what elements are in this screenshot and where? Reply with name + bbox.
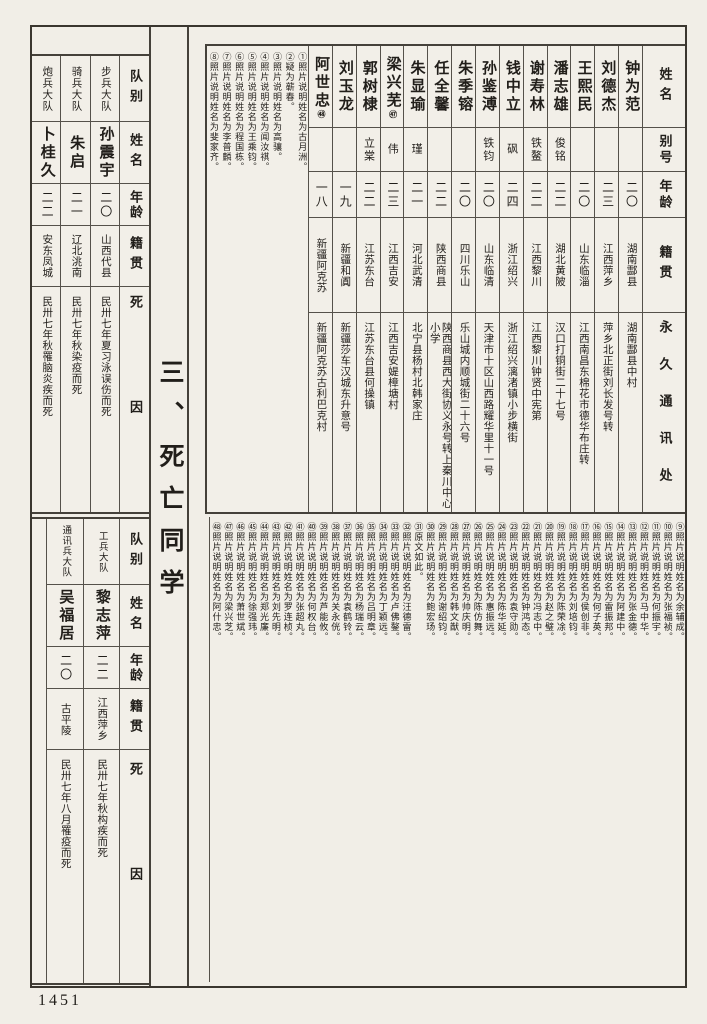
person-name: 任全馨	[432, 60, 448, 114]
name-cell: 钱中立	[500, 46, 523, 128]
photo-caption-note: ㉗照片说明姓名为帅庆明。	[461, 522, 470, 982]
note-column: ㊼照片说明姓名为梁兴芝。	[222, 522, 234, 982]
alias-value: 铁鳌	[529, 137, 542, 163]
age-cell: 二二	[428, 172, 451, 218]
permanent-address: 湖南酃县中村	[625, 322, 637, 388]
native-place: 江苏东台	[362, 243, 374, 287]
note-column: ㉓照片说明姓名为袁守勋。	[507, 522, 519, 982]
note-column: ⑱照片说明姓名为刘培钧。	[566, 522, 578, 982]
cause-cell: 民卅七年秋构疾而死	[84, 750, 120, 983]
address-cell: 江苏东台县何操镇	[357, 313, 380, 512]
age-value: 二一	[409, 181, 423, 209]
photo-caption-note: ㉘照片说明姓名为韩文猷。	[449, 522, 458, 982]
address-cell: 新疆莎车汉城东升意号	[333, 313, 356, 512]
note-column: ⑭照片说明姓名为阿建中。	[614, 522, 626, 982]
photo-caption-note: ㉜照片说明姓名为汪德雷。	[401, 522, 410, 982]
alias-cell	[333, 128, 356, 172]
cause-cell: 民卅七年秋罹脑炎疾而死	[32, 287, 60, 512]
note-column: ㉜照片说明姓名为汪德雷。	[400, 522, 412, 982]
address-label: 永久通讯处	[657, 320, 672, 505]
name-label: 姓名	[127, 596, 142, 636]
native-place: 山东临淄	[577, 243, 589, 287]
note-column: ㊶照片说明姓名为张超丸。	[293, 522, 305, 982]
photo-caption-note: ⑱照片说明姓名为刘培钧。	[568, 522, 577, 982]
photo-caption-note: ①照片说明姓名为古月洲。	[297, 52, 306, 512]
address-cell: 萍乡北正街刘长发号转	[595, 313, 618, 512]
native-place: 江西萍乡	[95, 697, 107, 741]
person-name: 刘德杰	[599, 60, 615, 114]
photo-caption-note: ⑪照片说明姓名为何振宇。	[651, 522, 660, 982]
native-place: 辽北洮南	[69, 234, 81, 278]
bottom-left-unit-table: 队别 姓名 年龄 籍贯 死因 工兵大队 黎志萍 二二 江西萍乡 民卅七年秋构疾而…	[32, 517, 149, 985]
header-name: 姓名	[120, 122, 149, 184]
alias-value: 瑾	[410, 143, 423, 156]
note-column: ㊺照片说明姓名为徐强玮。	[246, 522, 258, 982]
alias-value: 立棠	[362, 137, 375, 163]
note-column: ⑮照片说明姓名为雷振邦。	[602, 522, 614, 982]
age-cell: 二三	[595, 172, 618, 218]
cause-cell: 民卅七年八月罹疫而死	[47, 750, 83, 983]
alias-value: 砜	[505, 143, 518, 156]
bottom-left-rows: 工兵大队 黎志萍 二二 江西萍乡 民卅七年秋构疾而死 通讯兵大队 吴福居 二〇 …	[47, 519, 119, 983]
note-column: ㉟照片说明姓名为吕明章。	[364, 522, 376, 982]
person-name: 孙鉴溥	[480, 60, 496, 114]
native-cell: 湖北黄陂	[548, 218, 571, 313]
person-name: 刘玉龙	[337, 60, 353, 114]
header-native: 籍贯	[120, 226, 149, 287]
person-column: 钟为范 二〇 湖南酃县 湖南酃县中村	[618, 46, 642, 512]
age-value: 二二	[528, 181, 542, 209]
person-column: 郭树棣 立棠 二二 江苏东台 江苏东台县何操镇	[356, 46, 380, 512]
age-value: 二〇	[481, 181, 495, 209]
person-column: 梁兴芜㊼ 伟 二三 江西吉安 江西吉安媞樟塘村	[380, 46, 404, 512]
alias-cell	[428, 128, 451, 172]
address-cell: 江西黎川钟贤中宪第	[524, 313, 547, 512]
photo-caption-note: ㊺照片说明姓名为徐强玮。	[247, 522, 256, 982]
native-cell: 江西萍乡	[84, 689, 120, 750]
bottom-left-header-column: 队别 姓名 年龄 籍贯 死因	[119, 519, 149, 983]
note-column: ㊻照片说明姓名为萧世斌。	[234, 522, 246, 982]
cause-cell: 民卅七年夏习泳误伤而死	[91, 287, 119, 512]
name-cell: 朱启	[61, 122, 89, 184]
age-cell: 一八	[309, 172, 332, 218]
photo-caption-note: ㊻照片说明姓名为萧世斌。	[235, 522, 244, 982]
age-value: 二二	[552, 181, 566, 209]
person-column: 钱中立 砜 二四 浙江绍兴 浙江绍兴漓渚镇小步横街	[499, 46, 523, 512]
unit-cell: 炮兵大队	[32, 56, 60, 122]
native-place: 山东临清	[481, 243, 493, 287]
native-cell: 古平陵	[47, 689, 83, 750]
death-cause: 民卅七年秋染疫而死	[69, 296, 81, 395]
name-cell: 任全馨	[428, 46, 451, 128]
address-cell: 新疆阿克苏古利巴克村	[309, 313, 332, 512]
note-column: ㉒照片说明姓名为钟鸿态。	[519, 522, 531, 982]
death-cause: 民卅七年秋构疾而死	[95, 759, 107, 858]
unit-cell: 骑兵大队	[61, 56, 89, 122]
photo-caption-note: ㊲照片说明姓名为袁鹤铃。	[342, 522, 351, 982]
native-place: 江西萍乡	[601, 243, 613, 287]
note-column: ⑩照片说明姓名为张福祯。	[661, 522, 673, 982]
name-cell: 钟为范	[619, 46, 642, 128]
note-column: ⑲照片说明姓名为陈荣凃。	[554, 522, 566, 982]
name-cell: 郭树棣	[357, 46, 380, 128]
age-value: 二〇	[98, 191, 112, 219]
age-cell: 二〇	[452, 172, 475, 218]
permanent-address: 陕西商县西大街协义永号转上秦川中心小学	[428, 322, 451, 512]
native-cell: 山东临清	[476, 218, 499, 313]
top-left-header-column: 队别 姓名 年龄 籍贯 死因	[119, 56, 149, 512]
photo-caption-note: ⑬照片说明姓名为张金德。	[627, 522, 636, 982]
header-name: 姓名	[120, 585, 149, 647]
native-cell: 四川乐山	[452, 218, 475, 313]
person-column: 潘志雄 俊铭 二二 湖北黄陂 汉口打铜街二十七号	[547, 46, 571, 512]
photo-caption-note: ㉒照片说明姓名为钟鸿态。	[520, 522, 529, 982]
photo-caption-note: ⑦照片说明姓名为李普麟。	[221, 52, 230, 512]
title-strip: 三、死亡同学	[149, 27, 189, 986]
photo-caption-note: ㉓照片说明姓名为袁守勋。	[508, 522, 517, 982]
photo-caption-note: ⑰照片说明姓名为侯创非。	[580, 522, 589, 982]
unit-name: 通讯兵大队	[59, 525, 70, 578]
native-place: 湖北黄陂	[553, 243, 565, 287]
unit-column: 工兵大队 黎志萍 二二 江西萍乡 民卅七年秋构疾而死	[83, 519, 120, 983]
name-cell: 王熙民	[571, 46, 594, 128]
death-cause: 民卅七年夏习泳误伤而死	[99, 296, 111, 417]
note-column: ①照片说明姓名为古月洲。	[295, 52, 308, 512]
unit-label: 队别	[127, 69, 142, 109]
photo-caption-note: ㊱照片说明姓名为杨瑞云。	[354, 522, 363, 982]
age-value: 一九	[337, 181, 351, 209]
native-label: 籍贯	[657, 245, 672, 285]
age-value: 二二	[361, 181, 375, 209]
photo-caption-note: ⑥照片说明姓名为程国栋。	[234, 52, 243, 512]
person-name: 潘志雄	[552, 60, 568, 114]
header-age: 年龄	[643, 172, 685, 218]
native-cell: 新疆阿克苏	[309, 218, 332, 313]
alias-cell	[619, 128, 642, 172]
name-cell: 孙震宇	[91, 122, 119, 184]
unit-column: 炮兵大队 卜桂久 二二 安东凤城 民卅七年秋罹脑炎疾而死	[32, 56, 60, 512]
alias-cell	[571, 128, 594, 172]
page-frame: 队别 姓名 年龄 籍贯 死因 步兵大队 孙震宇 二〇 山西代县 民卅七年夏习泳误…	[30, 25, 687, 988]
permanent-address: 萍乡北正街刘长发号转	[601, 322, 613, 432]
address-cell: 汉口打铜街二十七号	[548, 313, 571, 512]
unit-name: 炮兵大队	[40, 66, 52, 112]
note-column: ㉑照片说明姓名为冯志中。	[531, 522, 543, 982]
footnote-mark: ㊽	[317, 110, 326, 118]
cause-label: 死因	[127, 295, 142, 505]
header-unit: 队别	[120, 519, 149, 585]
note-column: ⑥照片说明姓名为程国栋。	[232, 52, 245, 512]
native-place: 湖南酃县	[625, 243, 637, 287]
name-cell: 孙鉴溥	[476, 46, 499, 128]
photo-caption-note: ⑧照片说明姓名为斐家齐。	[209, 52, 218, 512]
photo-caption-note: ㊽照片说明姓名为阿什忠。	[211, 522, 220, 982]
alias-value: 铁钧	[481, 137, 494, 163]
person-column: 朱显瑜 瑾 二一 河北武清 北宁县杨村北韩家庄	[403, 46, 427, 512]
name-cell: 朱显瑜	[404, 46, 427, 128]
cause-cell: 民卅七年秋染疫而死	[61, 287, 89, 512]
age-cell: 二〇	[619, 172, 642, 218]
name-cell: 刘玉龙	[333, 46, 356, 128]
note-column: ㉖照片说明姓名为陈仿舞。	[471, 522, 483, 982]
photo-caption-note: ㊷照片说明姓名为罗连桢。	[283, 522, 292, 982]
note-column: ⑤照片说明姓名为王乘钧。	[245, 52, 258, 512]
unit-cell: 通讯兵大队	[47, 519, 83, 585]
death-cause: 民卅七年八月罹疫而死	[59, 759, 71, 869]
age-value: 二四	[504, 181, 518, 209]
permanent-address: 江西黎川钟贤中宪第	[529, 322, 541, 421]
unit-label: 队别	[127, 532, 142, 572]
unit-column: 步兵大队 孙震宇 二〇 山西代县 民卅七年夏习泳误伤而死	[90, 56, 119, 512]
age-cell: 二〇	[476, 172, 499, 218]
note-column: ㊽照片说明姓名为阿什忠。	[210, 522, 222, 982]
note-column: ㊲照片说明姓名为袁鹤铃。	[341, 522, 353, 982]
note-column: ㊵照片说明姓名为何权台。	[305, 522, 317, 982]
person-name: 黎志萍	[93, 589, 110, 643]
photo-caption-note: ㉞照片说明姓名为丁颖远。	[378, 522, 387, 982]
note-column: ④照片说明姓名为闻汝祺。	[258, 52, 271, 512]
age-cell: 二二	[32, 184, 60, 226]
note-column: ㊱照片说明姓名为杨瑞云。	[353, 522, 365, 982]
person-name: 钟为范	[623, 60, 639, 114]
native-place: 四川乐山	[458, 243, 470, 287]
native-place: 浙江绍兴	[505, 243, 517, 287]
age-cell: 一九	[333, 172, 356, 218]
permanent-address: 江西南昌东棉花市德华布庄转	[577, 322, 589, 465]
alias-cell: 俊铭	[548, 128, 571, 172]
note-column: ㉔照片说明姓名为陈华延。	[495, 522, 507, 982]
permanent-address: 天津市十区山西路耀华里十一号	[481, 322, 493, 476]
age-cell: 二二	[84, 647, 120, 689]
photo-caption-note: ㊴照片说明姓名为芦能攸。	[318, 522, 327, 982]
header-native: 籍贯	[643, 218, 685, 313]
photo-caption-note: ㉑照片说明姓名为冯志中。	[532, 522, 541, 982]
roster-person-columns: 钟为范 二〇 湖南酃县 湖南酃县中村 刘德杰 二三 江西萍乡 萍乡北正街刘长发号…	[308, 46, 642, 512]
photo-caption-note: ㉔照片说明姓名为陈华延。	[496, 522, 505, 982]
death-cause: 民卅七年秋罹脑炎疾而死	[40, 296, 52, 417]
photo-caption-note: ㊵照片说明姓名为何权台。	[306, 522, 315, 982]
photo-caption-note: ⑩照片说明姓名为张福祯。	[663, 522, 672, 982]
note-column: ㊳照片说明姓名为关永侊。	[329, 522, 341, 982]
photo-caption-note: ㉖照片说明姓名为陈仿舞。	[473, 522, 482, 982]
native-place: 江西黎川	[529, 243, 541, 287]
age-cell: 二四	[500, 172, 523, 218]
unit-name: 步兵大队	[99, 66, 111, 112]
unit-cell: 步兵大队	[91, 56, 119, 122]
top-notes-block: ①照片说明姓名为古月洲。 ②疑为蕲春。 ③照片说明姓名为高骧。 ④照片说明姓名为…	[207, 46, 308, 512]
person-name: 吴福居	[56, 589, 73, 643]
native-place: 江西吉安	[386, 243, 398, 287]
person-column: 王熙民 二〇 山东临淄 江西南昌东棉花市德华布庄转	[570, 46, 594, 512]
age-value: 二一	[69, 191, 83, 219]
alias-label: 别号	[657, 134, 672, 166]
address-cell: 湖南酃县中村	[619, 313, 642, 512]
age-label: 年龄	[657, 179, 672, 211]
page-number: 1451	[38, 992, 82, 1010]
photo-caption-note: ㉚照片说明姓名为鲍宏玚。	[425, 522, 434, 982]
address-cell: 乐山城内顺城街二十六号	[452, 313, 475, 512]
note-column: ⑳照片说明姓名为赵之璧。	[543, 522, 555, 982]
name-cell: 梁兴芜㊼	[381, 46, 404, 128]
photo-caption-note: ㊹照片说明姓名为郑光廉。	[259, 522, 268, 982]
note-column: ③照片说明姓名为高骧。	[270, 52, 283, 512]
age-cell: 二二	[524, 172, 547, 218]
blank-column	[32, 519, 47, 983]
permanent-address: 乐山城内顺城街二十六号	[458, 322, 470, 443]
photo-caption-note: ⑤照片说明姓名为王乘钧。	[247, 52, 256, 512]
native-place: 陕西商县	[434, 243, 446, 287]
name-cell: 卜桂久	[32, 122, 60, 184]
native-cell: 湖南酃县	[619, 218, 642, 313]
note-column: ㉘照片说明姓名为韩文猷。	[448, 522, 460, 982]
note-column: ㉗照片说明姓名为帅庆明。	[459, 522, 471, 982]
age-value: 一八	[314, 181, 328, 209]
note-column: ⑨照片说明姓名为余辅成。	[673, 522, 685, 982]
permanent-address: 江苏东台县何操镇	[362, 322, 374, 410]
note-column: ⑰照片说明姓名为侯创非。	[578, 522, 590, 982]
native-label: 籍贯	[127, 236, 142, 276]
photo-caption-note: ⑯照片说明姓名为何子英。	[591, 522, 600, 982]
person-column: 刘德杰 二三 江西萍乡 萍乡北正街刘长发号转	[594, 46, 618, 512]
note-column: ㉛原文如此。	[412, 522, 424, 982]
permanent-address: 浙江绍兴漓渚镇小步横街	[505, 322, 517, 443]
section-title: 三、死亡同学	[151, 359, 187, 986]
native-place: 河北武清	[410, 243, 422, 287]
age-cell: 二〇	[47, 647, 83, 689]
person-name: 朱季镕	[456, 60, 472, 114]
age-value: 二〇	[457, 181, 471, 209]
age-cell: 二一	[61, 184, 89, 226]
age-cell: 二〇	[91, 184, 119, 226]
name-cell: 吴福居	[47, 585, 83, 647]
photo-caption-note: ㊸照片说明姓名为刘先明。	[271, 522, 280, 982]
age-value: 二〇	[576, 181, 590, 209]
age-cell: 二〇	[571, 172, 594, 218]
person-column: 任全馨 二二 陕西商县 陕西商县西大街协义永号转上秦川中心小学	[427, 46, 451, 512]
unit-column: 骑兵大队 朱启 二一 辽北洮南 民卅七年秋染疫而死	[60, 56, 89, 512]
header-cause: 死因	[120, 750, 149, 983]
note-column: ㊹照片说明姓名为郑光廉。	[258, 522, 270, 982]
person-column: 刘玉龙 一九 新疆和阗 新疆莎车汉城东升意号	[332, 46, 356, 512]
permanent-address: 江西吉安媞樟塘村	[386, 322, 398, 410]
scanned-register-page: { "page": { "section_title": "三、死亡同学", "…	[0, 0, 707, 1024]
age-value: 二〇	[624, 181, 638, 209]
person-name: 王熙民	[575, 60, 591, 114]
photo-caption-note: ③照片说明姓名为高骧。	[272, 52, 281, 512]
alias-value: 俊铭	[553, 137, 566, 163]
photo-caption-note: ②疑为蕲春。	[285, 52, 294, 512]
address-cell: 陕西商县西大街协义永号转上秦川中心小学	[428, 313, 451, 512]
note-column: ㉕照片说明姓名为惠振远。	[483, 522, 495, 982]
native-cell: 山西代县	[91, 226, 119, 287]
native-cell: 辽北洮南	[61, 226, 89, 287]
name-label: 姓名	[127, 133, 142, 173]
age-label: 年龄	[127, 653, 142, 683]
permanent-address: 新疆阿克苏古利巴克村	[314, 322, 326, 432]
note-column: ⑧照片说明姓名为斐家齐。	[207, 52, 220, 512]
alias-cell	[309, 128, 332, 172]
note-column: ㊷照片说明姓名为罗连桢。	[281, 522, 293, 982]
photo-caption-note: ⑳照片说明姓名为赵之璧。	[544, 522, 553, 982]
person-name: 朱显瑜	[408, 60, 424, 114]
person-name: 阿世忠	[313, 56, 329, 110]
age-cell: 二二	[548, 172, 571, 218]
alias-cell: 铁钧	[476, 128, 499, 172]
photo-caption-note: ㉟照片说明姓名为吕明章。	[366, 522, 375, 982]
native-cell: 江西萍乡	[595, 218, 618, 313]
note-column: ㊴照片说明姓名为芦能攸。	[317, 522, 329, 982]
age-label: 年龄	[127, 190, 142, 220]
person-name: 谢寿林	[528, 60, 544, 114]
native-place: 山西代县	[99, 234, 111, 278]
native-cell: 陕西商县	[428, 218, 451, 313]
native-cell: 安东凤城	[32, 226, 60, 287]
photo-caption-note: ⑭照片说明姓名为阿建中。	[615, 522, 624, 982]
header-age: 年龄	[120, 184, 149, 226]
age-value: 二二	[433, 181, 447, 209]
name-cell: 阿世忠㊽	[309, 46, 332, 128]
age-cell: 二一	[404, 172, 427, 218]
native-place: 新疆阿克苏	[314, 238, 326, 293]
photo-caption-note: ⑫照片说明姓名为马中华。	[639, 522, 648, 982]
permanent-address: 北宁县杨村北韩家庄	[410, 322, 422, 421]
top-left-unit-table: 队别 姓名 年龄 籍贯 死因 步兵大队 孙震宇 二〇 山西代县 民卅七年夏习泳误…	[32, 54, 149, 514]
header-name: 姓名	[643, 46, 685, 128]
person-column: 谢寿林 铁鳌 二二 江西黎川 江西黎川钟贤中宪第	[523, 46, 547, 512]
address-cell: 江西南昌东棉花市德华布庄转	[571, 313, 594, 512]
header-age: 年龄	[120, 647, 149, 689]
note-column: ㉞照片说明姓名为丁颖远。	[376, 522, 388, 982]
native-cell: 江苏东台	[357, 218, 380, 313]
bottom-notes-block: ⑨照片说明姓名为余辅成。 ⑩照片说明姓名为张福祯。 ⑪照片说明姓名为何振宇。 ⑫…	[209, 517, 685, 982]
photo-caption-note: ⑲照片说明姓名为陈荣凃。	[556, 522, 565, 982]
roster-table: 姓名 别号 年龄 籍贯 永久通讯处 钟为范 二〇 湖南酃县 湖南酃县中村 刘德杰…	[205, 44, 685, 514]
person-column: 阿世忠㊽ 一八 新疆阿克苏 新疆阿克苏古利巴克村	[309, 46, 332, 512]
person-name: 孙震宇	[96, 126, 113, 180]
photo-caption-note: ⑮照片说明姓名为雷振邦。	[603, 522, 612, 982]
person-name: 梁兴芜	[385, 56, 401, 110]
cause-label: 死因	[127, 762, 142, 972]
age-value: 二三	[600, 181, 614, 209]
note-column: ㉝照片说明姓名为卢佛鏊。	[388, 522, 400, 982]
note-column: ⑬照片说明姓名为张金德。	[626, 522, 638, 982]
address-cell: 浙江绍兴漓渚镇小步横街	[500, 313, 523, 512]
name-cell: 朱季镕	[452, 46, 475, 128]
person-name: 卜桂久	[38, 126, 55, 180]
person-column: 朱季镕 二〇 四川乐山 乐山城内顺城街二十六号	[451, 46, 475, 512]
person-name: 钱中立	[504, 60, 520, 114]
name-cell: 刘德杰	[595, 46, 618, 128]
alias-cell: 瑾	[404, 128, 427, 172]
age-cell: 二三	[381, 172, 404, 218]
alias-cell: 铁鳌	[524, 128, 547, 172]
address-cell: 天津市十区山西路耀华里十一号	[476, 313, 499, 512]
native-cell: 河北武清	[404, 218, 427, 313]
alias-cell: 伟	[381, 128, 404, 172]
photo-caption-note: ㊼照片说明姓名为梁兴芝。	[223, 522, 232, 982]
permanent-address: 汉口打铜街二十七号	[553, 322, 565, 421]
note-column: ⑯照片说明姓名为何子英。	[590, 522, 602, 982]
roster-header-column: 姓名 别号 年龄 籍贯 永久通讯处	[642, 46, 685, 512]
name-label: 姓名	[657, 67, 672, 107]
native-cell: 新疆和阗	[333, 218, 356, 313]
person-name: 郭树棣	[361, 60, 377, 114]
note-column: ㉚照片说明姓名为鲍宏玚。	[424, 522, 436, 982]
unit-cell: 工兵大队	[84, 519, 120, 585]
header-native: 籍贯	[120, 689, 149, 750]
photo-caption-note: ㉛原文如此。	[413, 522, 422, 982]
native-cell: 江西黎川	[524, 218, 547, 313]
